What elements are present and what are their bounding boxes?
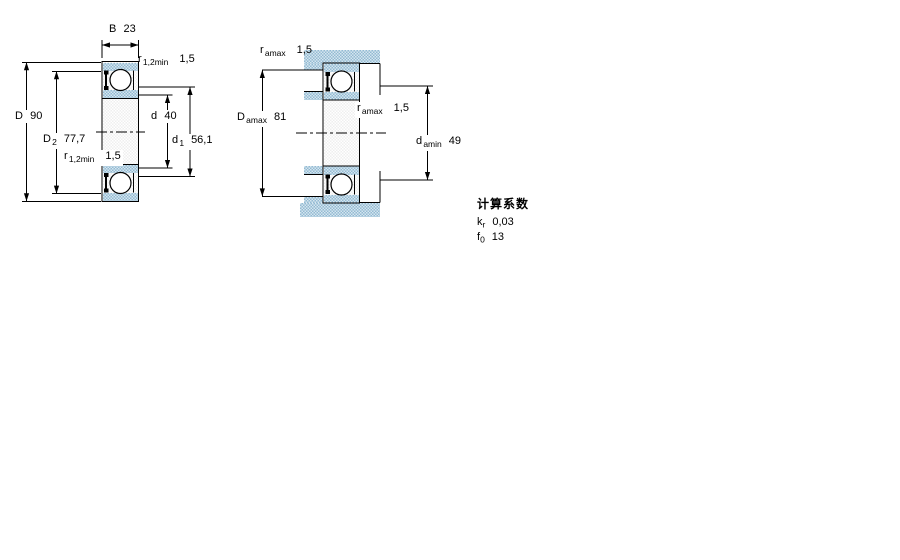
ball — [110, 173, 131, 194]
dim-label-d1: d156,1 — [170, 134, 214, 150]
ball — [331, 174, 352, 195]
dim-label-B: B23 — [109, 23, 136, 36]
dim-label-r12min-top: r1,2min1,5 — [138, 53, 195, 69]
factors-title: 计算系数 — [477, 195, 529, 212]
arrowheads — [24, 42, 430, 201]
dim-label-Damax: Damax81 — [235, 111, 288, 127]
ball — [110, 70, 131, 91]
dim-label-D2: D277,7 — [41, 133, 87, 149]
dim-label-D: D90 — [13, 110, 44, 123]
dim-label-damin: damin49 — [414, 135, 463, 151]
factor-f0: f013 — [477, 231, 504, 245]
dim-label-ramax-top: ramax1,5 — [260, 44, 312, 60]
dim-label-ramax-mid: ramax1,5 — [355, 102, 411, 118]
drawing-linework — [0, 0, 900, 560]
ball — [331, 71, 352, 92]
factor-kr: kr0,03 — [477, 216, 514, 230]
dim-label-d: d40 — [149, 110, 179, 123]
dim-label-r12min-bottom: r1,2min1,5 — [62, 150, 123, 166]
bearing-dimension-drawing: B23 r1,2min1,5 D90 D277,7 r1,2min1,5 d40… — [0, 0, 900, 560]
